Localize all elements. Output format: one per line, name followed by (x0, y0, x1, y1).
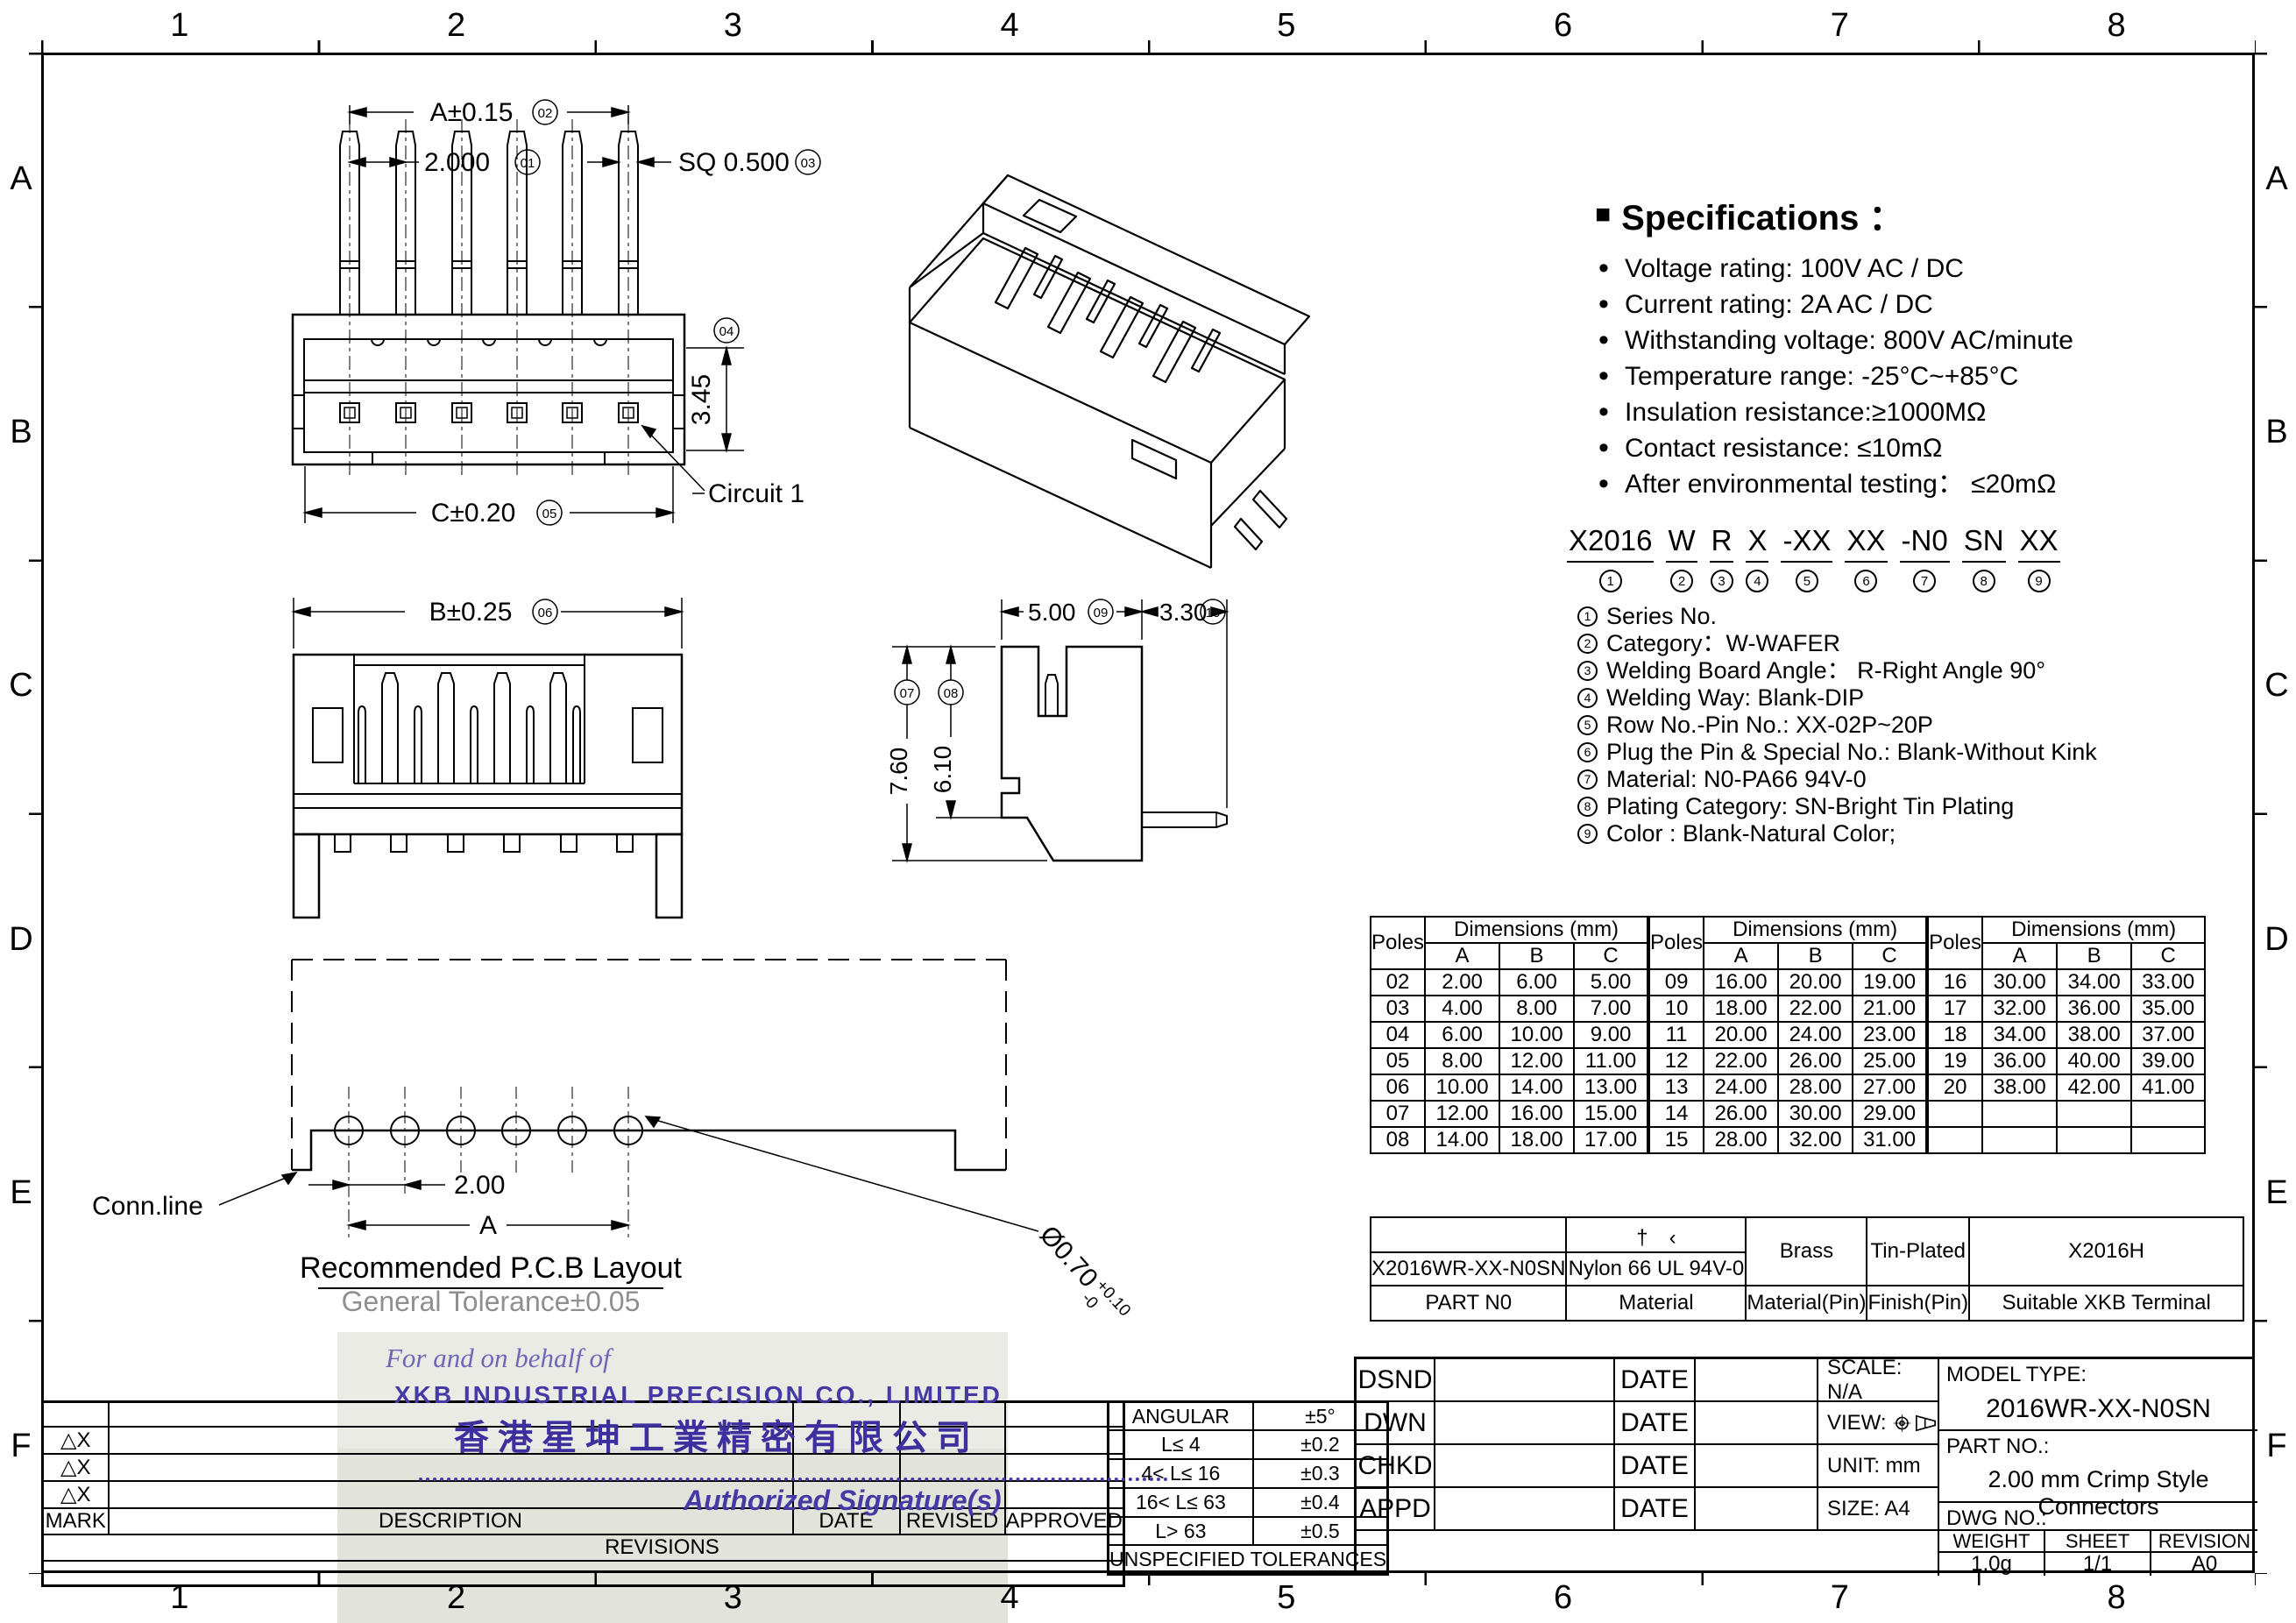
dim-tail-label: 3.30 (1159, 599, 1208, 626)
material-value: Nylon 66 UL 94V-0 (1566, 1252, 1746, 1286)
legend-item: 5 Row No.-Pin No.: XX-02P~20P (1577, 712, 2097, 739)
dim-b-label: B±0.25 (429, 598, 513, 627)
table-row: 1324.0028.0027.00 (1649, 1074, 1926, 1101)
header-mark: MARK (43, 1508, 109, 1534)
table-row: 1528.0032.0031.00 (1649, 1127, 1926, 1153)
zone-letter: C (4, 559, 39, 812)
dim-a-number: 02 (538, 106, 553, 121)
legend-item: 2 Category：W-WAFER (1577, 630, 2097, 657)
table-row (1928, 1101, 2205, 1127)
zone-letter: A (4, 53, 39, 306)
revision-label: REVISION (2151, 1531, 2257, 1553)
table-row: 0814.0018.0017.00 (1371, 1127, 1648, 1153)
table-row: 1834.0038.0037.00 (1928, 1022, 2205, 1048)
revision-mark: △X (43, 1427, 109, 1454)
title-block: DSND DATE SCALE: N/A DWN DATE VIEW: CHKD… (1354, 1357, 2255, 1573)
dwn-date-label: DATE (1615, 1402, 1696, 1445)
table-row: 1936.0040.0039.00 (1928, 1048, 2205, 1074)
unit-field: UNIT: mm (1818, 1445, 1939, 1488)
part-number-code: X2016 1 W 2 R 3 X 4 -XX 5 XX 6 -N0 7 SN … (1567, 524, 2060, 592)
legend-item: 9 Color : Blank-Natural Color; (1577, 820, 2097, 847)
chkd-value (1435, 1445, 1615, 1488)
zone-numbers-top: 12345678 (41, 7, 2255, 44)
table-row: 1222.0026.0025.00 (1649, 1048, 1926, 1074)
dim-c-label: C±0.20 (431, 499, 516, 528)
pcb-layout-drawing: 2.00 A Conn.line Ø0.70 +0.10 -0 Recommen… (88, 929, 1183, 1367)
zone-letter: D (2259, 813, 2294, 1067)
pin-material-value: Brass (1746, 1217, 1867, 1286)
connline-leader (219, 1173, 296, 1205)
dim-c-number: 05 (542, 507, 557, 521)
drawing-sheet: 12345678 12345678 ABCDEF ABCDEF (0, 0, 2296, 1623)
dim-pitch-label: 2.000 (424, 148, 490, 177)
dim-h-inner-label: 6.10 (929, 746, 956, 794)
stamp-signature: Authorized Signature(s) (684, 1485, 1002, 1517)
zone-letters-right: ABCDEF (2259, 53, 2294, 1573)
legend-item: 1 Series No. (1577, 603, 2097, 630)
top-view-drawing: A±0.15 02 2.000 01 SQ 0.500 03 (131, 70, 920, 561)
tolerances-table: ANGULAR±5° L≤ 4±0.2 4< L≤ 16±0.3 16< L≤ … (1107, 1400, 1389, 1576)
pin-finish-label: Finish(Pin) (1867, 1286, 1969, 1321)
tolerance-row: L> 63±0.5 (1109, 1517, 1388, 1546)
dsnd-date-label: DATE (1615, 1359, 1696, 1402)
wafer-body (293, 315, 684, 464)
spec-item: Current rating: 2A AC / DC (1595, 287, 2165, 322)
dim-tail (1142, 599, 1227, 808)
tolerance-row: 16< L≤ 63±0.4 (1109, 1488, 1388, 1517)
hole-dia-label: Ø0.70 +0.10 -0 (1027, 1221, 1134, 1333)
zone-number: 5 (1148, 1579, 1425, 1616)
dim-tail-number: 10 (1206, 606, 1221, 620)
dim-b-number: 06 (538, 606, 553, 620)
svg-text:Ø0.70: Ø0.70 (1034, 1221, 1103, 1293)
material-label: Material (1566, 1286, 1746, 1321)
dim-sq-number: 03 (801, 156, 816, 171)
material-note: † ‹ (1566, 1217, 1746, 1252)
stamp-company-cn: 香港星坤工業精密有限公司 (454, 1409, 980, 1460)
part-code-legend: 1 Series No. 2 Category：W-WAFER 3 Weldin… (1577, 603, 2097, 847)
part-no-cell: PART NO.: 2.00 mm Crimp Style Connectors (1939, 1431, 2257, 1503)
stamp-behalf-line: For and on behalf of (386, 1343, 611, 1374)
zone-number: 2 (318, 7, 595, 44)
dim-height-label: 3.45 (687, 374, 716, 425)
zone-letter: E (2259, 1067, 2294, 1320)
part-code-segment: XX 9 (2018, 524, 2060, 592)
legend-item: 3 Welding Board Angle： R-Right Angle 90° (1577, 657, 2097, 684)
table-row: 2038.0042.0041.00 (1928, 1074, 2205, 1101)
appd-date-label: DATE (1615, 1488, 1696, 1531)
tolerance-row: L≤ 4±0.2 (1109, 1430, 1388, 1459)
spec-item: Insulation resistance:≥1000MΩ (1595, 394, 2165, 430)
dimensions-table-group1: PolesDimensions (mm) ABC 022.006.005.000… (1370, 916, 1648, 1154)
field-chkd: CHKD (1357, 1445, 1435, 1488)
table-row: 1630.0034.0033.00 (1928, 969, 2205, 996)
dsnd-value (1435, 1359, 1615, 1402)
dimensions-table: PolesDimensions (mm) ABC 022.006.005.000… (1370, 916, 2206, 1154)
dim-height-number: 04 (719, 324, 734, 339)
title-block-empty (1357, 1531, 1939, 1576)
dsnd-date-value (1696, 1359, 1818, 1402)
chkd-date-value (1696, 1445, 1818, 1488)
terminal-value: X2016H (1969, 1217, 2243, 1286)
dwn-value (1435, 1402, 1615, 1445)
dim-w-number: 09 (1094, 606, 1109, 620)
table-row (1928, 1127, 2205, 1153)
part-no-label: PART N0 (1371, 1286, 1566, 1321)
zone-letter: C (2259, 559, 2294, 812)
zone-number: 5 (1148, 7, 1425, 44)
material-table: † ‹ Brass Tin-Plated X2016H X2016WR-XX-N… (1370, 1216, 2244, 1322)
zone-letter: E (4, 1067, 39, 1320)
dim-w-label: 5.00 (1028, 599, 1076, 626)
dim-pitch-number: 01 (521, 156, 535, 171)
zone-letter: B (2259, 306, 2294, 559)
table-row: 0610.0014.0013.00 (1371, 1074, 1648, 1101)
connline-label: Conn.line (92, 1192, 203, 1221)
part-code-segment: -N0 7 (1900, 524, 1950, 592)
table-row: 058.0012.0011.00 (1371, 1048, 1648, 1074)
legend-item: 7 Material: N0-PA66 94V-0 (1577, 766, 2097, 793)
model-type-cell: MODEL TYPE: 2016WR-XX-N0SN (1939, 1359, 2257, 1431)
part-code-segment: SN 8 (1962, 524, 2006, 592)
zone-letter: D (4, 813, 39, 1067)
pcb-general-tolerance: General Tolerance±0.05 (342, 1286, 641, 1317)
chkd-date-label: DATE (1615, 1445, 1696, 1488)
zone-number: 7 (1702, 1579, 1979, 1616)
zone-letter: F (4, 1320, 39, 1573)
scale-field: SCALE: N/A (1818, 1359, 1939, 1402)
stamp-dotted-line (419, 1478, 1168, 1481)
zone-number: 8 (1978, 7, 2255, 44)
appd-date-value (1696, 1488, 1818, 1531)
dim-h-inner-number: 08 (944, 686, 959, 701)
revision-mark (43, 1402, 109, 1427)
dim-h-outer-number: 07 (900, 686, 915, 701)
zone-number: 8 (1978, 1579, 2255, 1616)
table-row: 022.006.005.00 (1371, 969, 1648, 996)
revision-mark: △X (43, 1454, 109, 1481)
third-angle-projection-icon (1892, 1408, 1938, 1438)
dim-a-label: A±0.15 (430, 98, 514, 127)
legend-item: 6 Plug the Pin & Special No.: Blank-With… (1577, 739, 2097, 766)
pin-finish-value: Tin-Plated (1867, 1217, 1969, 1286)
side-view-drawing: 5.00 09 3.30 10 07 7.60 (868, 561, 1306, 929)
tolerance-row: 4< L≤ 16±0.3 (1109, 1459, 1388, 1488)
table-row: 1018.0022.0021.00 (1649, 996, 1926, 1022)
part-code-segment: XX 6 (1845, 524, 1887, 592)
zone-number: 7 (1702, 7, 1979, 44)
part-code-segment: -XX 5 (1781, 524, 1832, 592)
front-view-drawing: B±0.25 06 (228, 561, 719, 938)
table-row: 0916.0020.0019.00 (1649, 969, 1926, 996)
table-row: 0712.0016.0015.00 (1371, 1101, 1648, 1127)
hole-dia-leader (646, 1116, 1038, 1231)
spec-item: After environmental testing： ≤20mΩ (1595, 466, 2165, 502)
stamp-company-en: XKB INDUSTRIAL PRECISION CO., LIMITED (394, 1381, 1003, 1409)
size-field: SIZE: A4 (1818, 1488, 1939, 1531)
pin-material-label: Material(Pin) (1746, 1286, 1867, 1321)
spec-item: Withstanding voltage: 800V AC/minute (1595, 322, 2165, 358)
dim-h-outer (892, 647, 1047, 861)
revision-value: A0 (2151, 1553, 2257, 1576)
header-approved: APPROVED (1005, 1508, 1124, 1534)
appd-value (1435, 1488, 1615, 1531)
connector-outline (292, 1130, 1006, 1170)
part-no-value: X2016WR-XX-N0SN (1371, 1252, 1566, 1286)
sheet-value: 1/1 (2045, 1553, 2151, 1576)
zone-letter: F (2259, 1320, 2294, 1573)
isometric-view-drawing (894, 123, 1455, 578)
weight-label: WEIGHT (1939, 1531, 2045, 1553)
part-code-segment: X2016 1 (1567, 524, 1654, 592)
pcb-dim-pitch-label: 2.00 (454, 1171, 505, 1200)
dwn-date-value (1696, 1402, 1818, 1445)
tolerance-row: ANGULAR±5° (1109, 1402, 1388, 1431)
zone-number: 6 (1425, 1579, 1702, 1616)
specifications-title: Specifications ： (1595, 189, 2165, 240)
table-row: 1732.0036.0035.00 (1928, 996, 2205, 1022)
specifications-block: Specifications ： Voltage rating: 100V AC… (1595, 189, 2165, 502)
model-type-value: 2016WR-XX-N0SN (1946, 1394, 2250, 1424)
field-dsnd: DSND (1357, 1359, 1435, 1402)
dim-sq-label: SQ 0.500 (678, 148, 790, 177)
zone-number: 4 (871, 7, 1148, 44)
part-code-segment: W 2 (1666, 524, 1697, 592)
spec-item: Contact resistance: ≤10mΩ (1595, 430, 2165, 466)
dimensions-table-group2: PolesDimensions (mm) ABC 0916.0020.0019.… (1648, 916, 1927, 1154)
spec-item: Voltage rating: 100V AC / DC (1595, 251, 2165, 287)
revisions-footer: REVISIONS (43, 1534, 1124, 1561)
pcb-dim-a-label: A (479, 1211, 497, 1240)
zone-letter: A (2259, 53, 2294, 306)
weight-value: 1.0g (1939, 1553, 2045, 1576)
field-appd: APPD (1357, 1488, 1435, 1531)
table-row: 1426.0030.0029.00 (1649, 1101, 1926, 1127)
zone-letters-left: ABCDEF (4, 53, 39, 1573)
revision-mark: △X (43, 1481, 109, 1508)
pcb-dim-pitch (308, 1180, 445, 1189)
zone-number: 3 (595, 7, 872, 44)
zone-number: 6 (1425, 7, 1702, 44)
terminal-label: Suitable XKB Terminal (1969, 1286, 2243, 1321)
legend-item: 8 Plating Category: SN-Bright Tin Platin… (1577, 793, 2097, 820)
pcb-outline-dashed (292, 960, 1006, 1170)
dwg-no-cell: DWG NO.: (1939, 1503, 2257, 1531)
table-row: 034.008.007.00 (1371, 996, 1648, 1022)
dimensions-table-group3: PolesDimensions (mm) ABC 1630.0034.0033.… (1927, 916, 2206, 1154)
tolerances-footer: UNSPECIFIED TOLERANCES (1109, 1545, 1388, 1574)
circuit1-label: Circuit 1 (708, 479, 804, 508)
zone-number: 1 (41, 7, 318, 44)
part-code-segment: X 4 (1746, 524, 1768, 592)
dim-h-outer-label: 7.60 (885, 748, 912, 796)
spec-item: Temperature range: -25°C~+85°C (1595, 358, 2165, 394)
table-row: 046.0010.009.00 (1371, 1022, 1648, 1048)
pcb-title: Recommended P.C.B Layout (300, 1251, 683, 1285)
legend-item: 4 Welding Way: Blank-DIP (1577, 684, 2097, 712)
zone-letter: B (4, 306, 39, 559)
table-row: 1120.0024.0023.00 (1649, 1022, 1926, 1048)
sheet-label: SHEET (2045, 1531, 2151, 1553)
view-field: VIEW: (1818, 1402, 1939, 1445)
part-code-segment: R 3 (1710, 524, 1734, 592)
field-dwn: DWN (1357, 1402, 1435, 1445)
